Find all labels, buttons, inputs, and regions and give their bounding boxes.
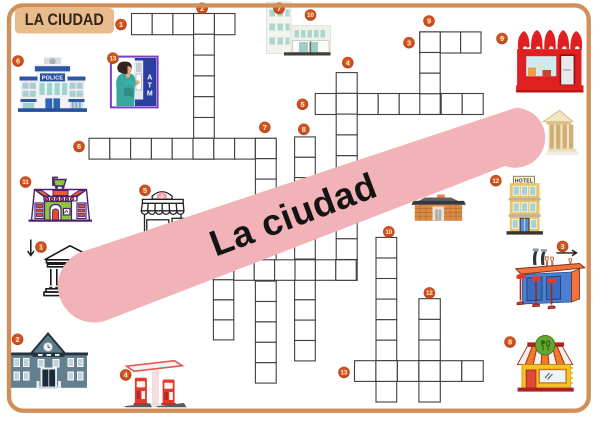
svg-text:LA CIUDAD: LA CIUDAD — [25, 10, 104, 29]
svg-text:10: 10 — [385, 229, 392, 236]
svg-text:A: A — [147, 75, 152, 82]
svg-text:T: T — [148, 83, 153, 90]
svg-text:7: 7 — [263, 123, 267, 132]
svg-text:3: 3 — [407, 38, 411, 47]
svg-text:13: 13 — [341, 370, 348, 377]
svg-text:3: 3 — [561, 242, 565, 251]
svg-text:8: 8 — [302, 125, 306, 134]
svg-text:8: 8 — [508, 338, 512, 347]
svg-text:6: 6 — [77, 142, 81, 151]
svg-text:2: 2 — [16, 335, 20, 344]
svg-text:M: M — [147, 91, 153, 98]
svg-text:13: 13 — [109, 55, 116, 62]
svg-text:9: 9 — [500, 34, 504, 43]
svg-text:1: 1 — [39, 243, 43, 252]
svg-text:1: 1 — [119, 20, 123, 29]
svg-text:6: 6 — [16, 57, 20, 66]
svg-text:5: 5 — [300, 100, 304, 109]
svg-text:12: 12 — [492, 178, 499, 185]
svg-text:12: 12 — [426, 290, 433, 297]
svg-text:POLICE: POLICE — [42, 76, 63, 82]
svg-text:10: 10 — [307, 12, 314, 19]
svg-text:9: 9 — [427, 17, 431, 26]
svg-text:11: 11 — [22, 179, 29, 186]
svg-text:5: 5 — [143, 186, 147, 195]
